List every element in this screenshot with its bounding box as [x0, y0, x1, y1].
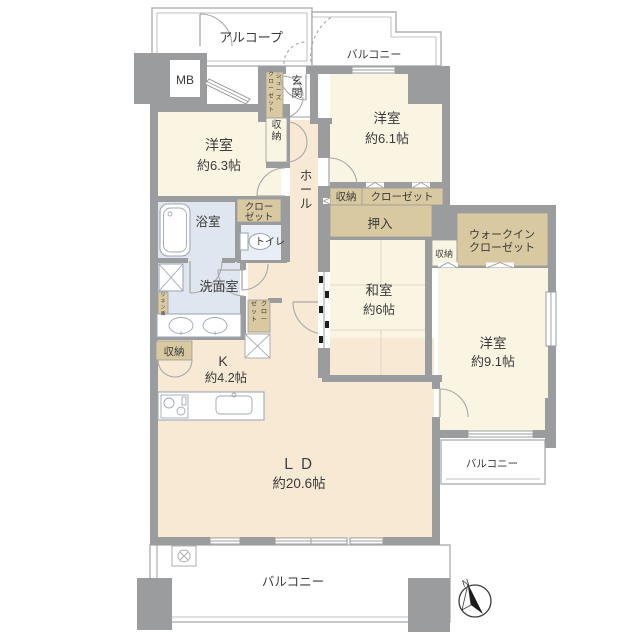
fusuma-door: [318, 272, 330, 348]
kitchen-storage-label: 収納: [164, 345, 185, 358]
closet-6-3-label-2: ゼット: [245, 211, 274, 223]
bedroom-9-1-size: 約9.1帖: [471, 354, 515, 369]
pillar-right: [545, 398, 556, 448]
storage-strip-label: 収納: [336, 190, 357, 203]
meter-box-label: MB: [176, 73, 194, 87]
washroom-label: 洗面室: [199, 279, 238, 294]
bedroom-6-1-size: 約6.1帖: [365, 131, 409, 146]
bath-label: 浴室: [195, 214, 220, 229]
entrance-label: 玄関: [292, 73, 303, 100]
linen-label: リネン庫: [161, 293, 166, 317]
vanity-double-sink: [157, 314, 241, 337]
bathtub: [160, 204, 190, 256]
hall-closet-label-2: ゼット: [251, 300, 257, 323]
washitsu-label: 和室: [366, 282, 393, 298]
pillar-bottom-right: [408, 578, 450, 632]
washitsu-size: 約6帖: [363, 302, 395, 317]
kitchen-label: K: [218, 353, 228, 369]
hall-label: ホール: [300, 169, 313, 211]
bedroom-6-3-size: 約6.3帖: [197, 158, 241, 173]
ld-label: ＬＤ: [281, 456, 317, 473]
bedroom-9-1-label: 洋室: [480, 335, 507, 351]
wic-label-2: クローゼット: [469, 241, 535, 254]
bedroom-6-3-label: 洋室: [205, 137, 233, 153]
toilet-label: トイレ: [255, 237, 285, 248]
ldk-floor: [156, 338, 434, 540]
entrance-storage-label: 収納: [272, 119, 282, 143]
ld-size: 約20.6帖: [272, 476, 325, 491]
refrigerator-space: [245, 334, 270, 358]
closet-6-1-label: クローゼット: [371, 191, 434, 203]
balcony-bottom-label: バルコニー: [262, 575, 324, 589]
bedroom-6-1-label: 洋室: [374, 110, 401, 126]
wic-label-1: ウォークイン: [469, 228, 535, 241]
balcony-right-label: バルコニー: [466, 458, 518, 470]
balcony-faucet: [172, 546, 196, 566]
oshiire-label: 押入: [367, 217, 393, 231]
hall-closet-label-1: クロー: [261, 301, 267, 323]
balcony-top-label: バルコニー: [347, 48, 402, 61]
bay-window: [205, 79, 250, 104]
alcove-label: アルコープ: [219, 30, 283, 45]
kitchen-counter: [158, 392, 264, 420]
kitchen-size: 約4.2帖: [205, 370, 247, 385]
storage-wic-label: 収納: [435, 248, 453, 259]
pillar-bottom-left: [137, 578, 172, 630]
washing-machine-pan: [159, 264, 183, 291]
compass-n-label: N: [461, 577, 471, 590]
compass: N: [459, 577, 491, 617]
floor-plan: N アルコープ バルコニー MB 玄関 シューズ クローゼット 収納 洋室 約6…: [0, 0, 640, 640]
shoes-closet-label-1: シューズ: [276, 74, 282, 101]
